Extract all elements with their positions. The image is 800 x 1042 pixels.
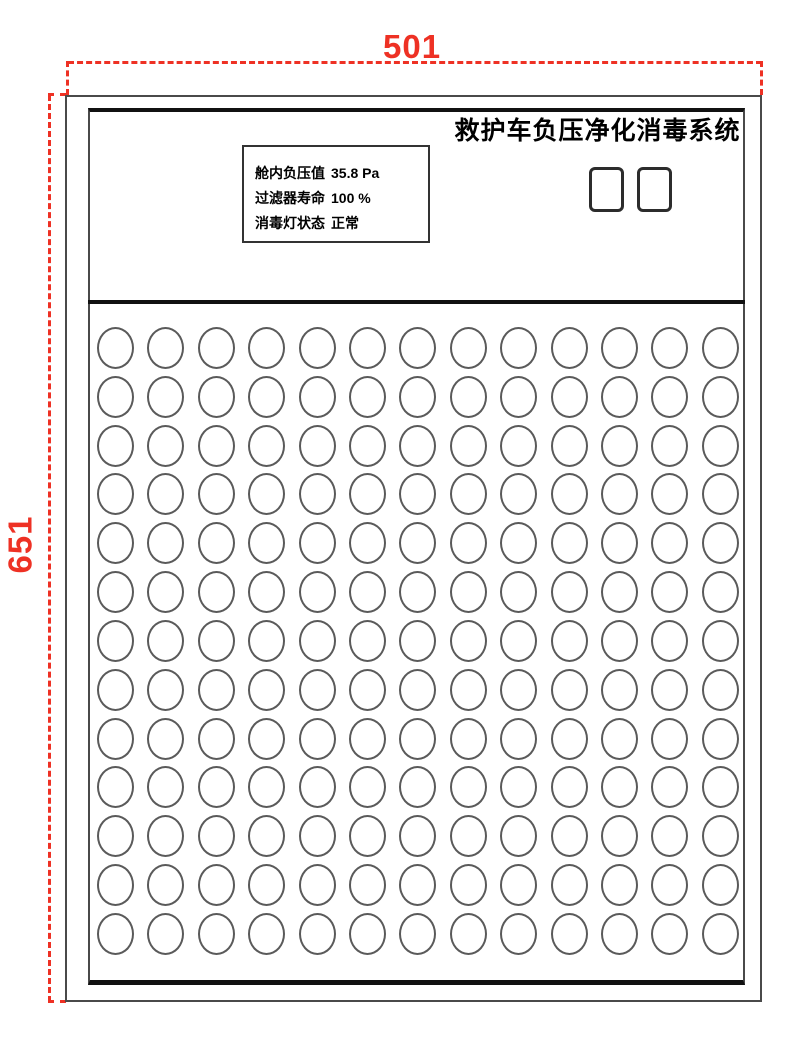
filter-value: 100 % <box>331 190 371 206</box>
perforation-hole <box>248 669 285 711</box>
perforation-hole <box>702 522 739 564</box>
dimension-extension-top-right <box>760 61 763 95</box>
header-separator-line <box>88 300 745 304</box>
perforation-hole <box>299 815 336 857</box>
perforation-hole <box>399 522 436 564</box>
panel-button-right[interactable] <box>637 167 672 212</box>
perforation-hole <box>248 815 285 857</box>
perforation-hole <box>551 913 588 955</box>
perforation-hole <box>198 766 235 808</box>
perforation-hole <box>349 913 386 955</box>
perforation-hole <box>601 815 638 857</box>
perforation-hole <box>198 425 235 467</box>
perforation-hole <box>349 815 386 857</box>
status-line-lamp: 消毒灯状态正常 <box>255 211 428 236</box>
perforation-hole <box>601 718 638 760</box>
perforation-hole <box>551 473 588 515</box>
technical-drawing-canvas: 501 651 救护车负压净化消毒系统 舱内负压值35.8 Pa 过滤器寿命10… <box>0 0 800 1042</box>
perforation-hole <box>500 620 537 662</box>
perforation-hole <box>248 571 285 613</box>
perforation-hole <box>651 913 688 955</box>
perforation-hole <box>651 571 688 613</box>
perforation-hole <box>299 766 336 808</box>
status-display-box: 舱内负压值35.8 Pa 过滤器寿命100 % 消毒灯状态正常 <box>242 145 430 243</box>
perforation-hole <box>97 864 134 906</box>
perforation-hole <box>198 376 235 418</box>
perforation-hole <box>147 522 184 564</box>
perforation-hole <box>198 327 235 369</box>
perforation-hole <box>248 620 285 662</box>
perforation-hole <box>198 669 235 711</box>
perforation-hole <box>399 669 436 711</box>
perforation-hole <box>601 376 638 418</box>
perforation-hole <box>500 473 537 515</box>
perforation-hole <box>702 766 739 808</box>
perforation-hole <box>702 473 739 515</box>
perforation-hole <box>551 376 588 418</box>
perforation-hole <box>500 669 537 711</box>
perforation-hole <box>147 766 184 808</box>
perforation-hole <box>601 522 638 564</box>
perforation-hole <box>198 620 235 662</box>
perforation-hole <box>299 571 336 613</box>
perforation-hole <box>147 864 184 906</box>
perforation-hole <box>147 327 184 369</box>
perforation-hole <box>198 815 235 857</box>
perforation-hole <box>248 522 285 564</box>
perforation-hole <box>601 473 638 515</box>
perforation-hole <box>500 327 537 369</box>
perforation-hole <box>198 718 235 760</box>
perforation-hole <box>299 620 336 662</box>
perforation-hole <box>299 718 336 760</box>
perforation-hole <box>702 620 739 662</box>
perforation-hole <box>349 571 386 613</box>
panel-button-left[interactable] <box>589 167 624 212</box>
perforation-hole <box>349 718 386 760</box>
perforation-hole <box>551 620 588 662</box>
perforation-hole <box>551 718 588 760</box>
pressure-label: 舱内负压值 <box>255 165 325 181</box>
perforation-hole <box>299 327 336 369</box>
perforation-hole <box>97 815 134 857</box>
perforation-hole <box>450 473 487 515</box>
perforation-hole <box>551 669 588 711</box>
perforation-hole <box>651 815 688 857</box>
perforation-hole <box>551 522 588 564</box>
perforation-hole <box>450 571 487 613</box>
perforation-hole <box>651 669 688 711</box>
perforation-hole <box>198 522 235 564</box>
perforation-hole <box>97 669 134 711</box>
dimension-height-label: 651 <box>4 515 37 573</box>
perforation-hole <box>97 718 134 760</box>
perforation-hole <box>97 425 134 467</box>
perforation-hole <box>97 327 134 369</box>
perforation-hole <box>500 913 537 955</box>
perforation-hole <box>299 522 336 564</box>
perforation-hole <box>147 473 184 515</box>
perforation-hole <box>147 718 184 760</box>
perforation-hole <box>147 669 184 711</box>
perforation-hole <box>248 376 285 418</box>
perforation-hole <box>248 425 285 467</box>
perforation-hole <box>651 425 688 467</box>
perforation-hole <box>147 913 184 955</box>
perforation-hole <box>399 376 436 418</box>
perforation-hole <box>97 620 134 662</box>
perforation-hole <box>198 473 235 515</box>
perforation-hole <box>399 425 436 467</box>
perforation-hole <box>601 864 638 906</box>
perforation-hole <box>651 327 688 369</box>
perforation-hole <box>450 718 487 760</box>
perforation-hole <box>399 766 436 808</box>
perforation-hole <box>399 718 436 760</box>
perforation-hole <box>500 766 537 808</box>
perforation-hole <box>651 864 688 906</box>
perforation-hole <box>601 620 638 662</box>
perforation-hole <box>450 620 487 662</box>
perforation-hole <box>601 913 638 955</box>
perforation-hole <box>450 669 487 711</box>
perforation-hole <box>651 522 688 564</box>
perforation-hole <box>349 425 386 467</box>
perforation-hole <box>651 718 688 760</box>
perforation-hole <box>551 425 588 467</box>
perforation-hole <box>399 913 436 955</box>
pressure-value: 35.8 Pa <box>331 165 379 181</box>
perforation-hole <box>349 473 386 515</box>
perforation-hole <box>450 327 487 369</box>
perforation-hole <box>450 815 487 857</box>
perforation-hole <box>198 864 235 906</box>
perforation-hole <box>450 425 487 467</box>
perforation-hole <box>651 376 688 418</box>
status-line-pressure: 舱内负压值35.8 Pa <box>255 161 428 186</box>
perforation-hole <box>299 913 336 955</box>
perforation-hole <box>399 327 436 369</box>
perforation-hole <box>702 425 739 467</box>
perforation-hole <box>97 473 134 515</box>
perforation-hole <box>399 571 436 613</box>
perforation-hole <box>299 425 336 467</box>
perforation-hole <box>399 864 436 906</box>
perforation-hole <box>248 718 285 760</box>
dimension-extension-left-top <box>48 93 66 96</box>
perforation-hole <box>450 522 487 564</box>
perforation-hole <box>97 376 134 418</box>
perforation-hole <box>450 766 487 808</box>
perforation-hole <box>349 864 386 906</box>
perforation-hole <box>702 376 739 418</box>
perforation-hole <box>450 864 487 906</box>
perforation-hole <box>198 913 235 955</box>
perforation-hole <box>601 425 638 467</box>
perforation-hole <box>299 376 336 418</box>
perforation-hole <box>551 864 588 906</box>
perforation-hole <box>349 766 386 808</box>
perforation-grid <box>97 327 739 955</box>
lamp-label: 消毒灯状态 <box>255 215 325 231</box>
perforation-hole <box>551 571 588 613</box>
perforation-hole <box>702 718 739 760</box>
perforation-hole <box>248 766 285 808</box>
perforation-hole <box>551 766 588 808</box>
perforation-hole <box>399 620 436 662</box>
perforation-hole <box>299 473 336 515</box>
dimension-extension-top-left <box>66 61 69 95</box>
perforation-hole <box>97 571 134 613</box>
perforation-hole <box>97 766 134 808</box>
perforation-hole <box>248 864 285 906</box>
perforation-hole <box>248 327 285 369</box>
perforation-hole <box>198 571 235 613</box>
perforation-hole <box>651 766 688 808</box>
dimension-line-height <box>48 95 51 1002</box>
perforation-hole <box>702 913 739 955</box>
perforation-hole <box>551 815 588 857</box>
perforation-hole <box>248 473 285 515</box>
perforation-hole <box>97 913 134 955</box>
perforation-hole <box>450 913 487 955</box>
perforation-hole <box>702 571 739 613</box>
status-line-filter: 过滤器寿命100 % <box>255 186 428 211</box>
perforation-hole <box>399 473 436 515</box>
perforation-hole <box>601 669 638 711</box>
perforation-hole <box>500 815 537 857</box>
perforation-hole <box>147 425 184 467</box>
perforation-hole <box>601 766 638 808</box>
perforation-hole <box>349 669 386 711</box>
perforation-hole <box>349 522 386 564</box>
lamp-value: 正常 <box>331 215 359 231</box>
filter-label: 过滤器寿命 <box>255 190 325 206</box>
dimension-extension-left-bottom <box>48 1000 66 1003</box>
perforation-hole <box>702 815 739 857</box>
perforation-hole <box>500 425 537 467</box>
perforation-hole <box>97 522 134 564</box>
perforation-hole <box>147 620 184 662</box>
perforation-hole <box>349 376 386 418</box>
perforation-hole <box>500 522 537 564</box>
perforation-hole <box>702 669 739 711</box>
perforation-hole <box>651 620 688 662</box>
perforation-hole <box>147 376 184 418</box>
perforation-hole <box>450 376 487 418</box>
perforation-hole <box>147 815 184 857</box>
perforation-hole <box>601 327 638 369</box>
perforation-hole <box>147 571 184 613</box>
dimension-width-label: 501 <box>383 30 441 63</box>
perforation-hole <box>702 864 739 906</box>
perforation-hole <box>299 669 336 711</box>
perforation-hole <box>500 718 537 760</box>
perforation-hole <box>551 327 588 369</box>
perforation-hole <box>500 376 537 418</box>
perforation-hole <box>601 571 638 613</box>
perforation-hole <box>702 327 739 369</box>
perforation-hole <box>349 620 386 662</box>
perforation-hole <box>248 913 285 955</box>
panel-title: 救护车负压净化消毒系统 <box>450 111 745 147</box>
perforation-hole <box>500 864 537 906</box>
perforation-hole <box>299 864 336 906</box>
perforation-hole <box>399 815 436 857</box>
perforation-hole <box>651 473 688 515</box>
perforation-hole <box>500 571 537 613</box>
perforation-hole <box>349 327 386 369</box>
